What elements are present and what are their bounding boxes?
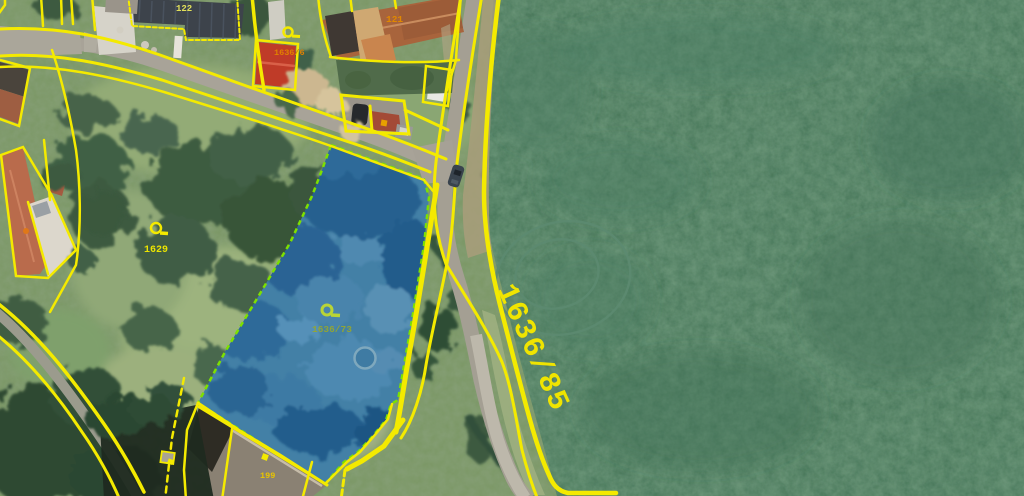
svg-text:1636/73: 1636/73 — [312, 324, 352, 335]
svg-text:122: 122 — [176, 4, 192, 14]
svg-text:1629: 1629 — [144, 245, 168, 256]
svg-text:121: 121 — [386, 14, 403, 25]
svg-text:199: 199 — [260, 471, 275, 481]
svg-text:1636/6: 1636/6 — [274, 48, 305, 58]
